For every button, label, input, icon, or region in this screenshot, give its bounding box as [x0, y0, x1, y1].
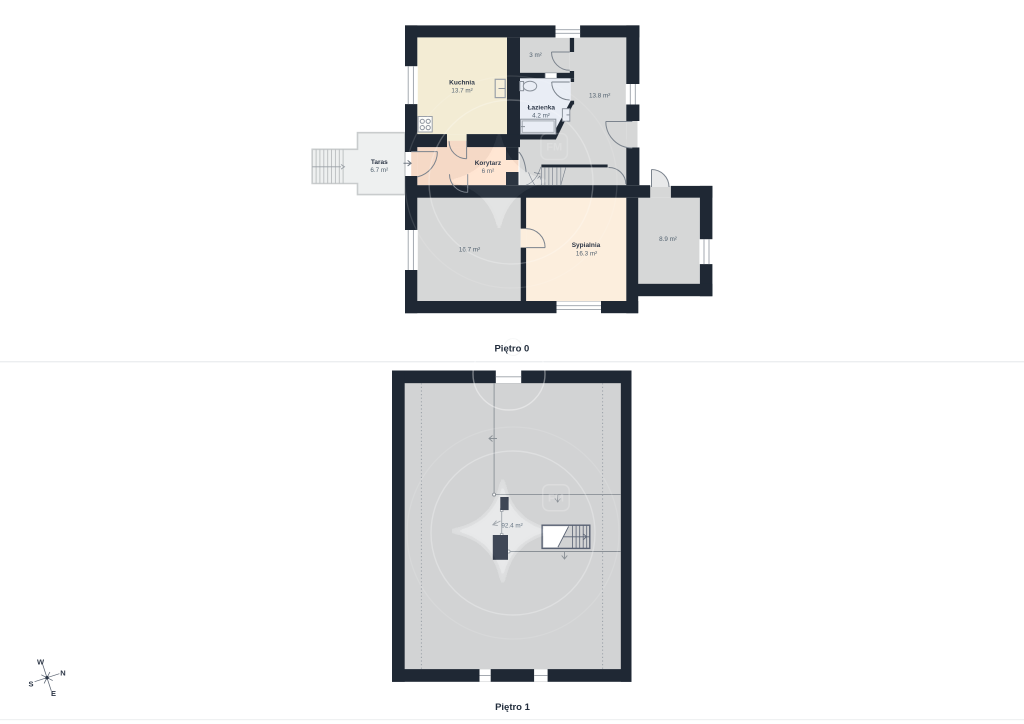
svg-text:S: S — [28, 680, 33, 689]
svg-text:Piętro 0: Piętro 0 — [494, 344, 529, 355]
svg-text:W: W — [37, 658, 45, 667]
svg-text:13.8 m²: 13.8 m² — [589, 92, 610, 99]
svg-text:Taras: Taras — [371, 159, 388, 166]
svg-text:FM: FM — [548, 493, 564, 505]
svg-text:FM: FM — [546, 142, 562, 154]
svg-text:E: E — [51, 689, 56, 698]
svg-text:3 m²: 3 m² — [529, 52, 542, 59]
svg-text:Piętro 1: Piętro 1 — [495, 702, 531, 713]
svg-text:8.9 m²: 8.9 m² — [659, 236, 677, 243]
svg-text:4.2 m²: 4.2 m² — [532, 113, 550, 120]
svg-text:6.7 m²: 6.7 m² — [370, 167, 388, 174]
svg-text:N: N — [60, 668, 65, 677]
